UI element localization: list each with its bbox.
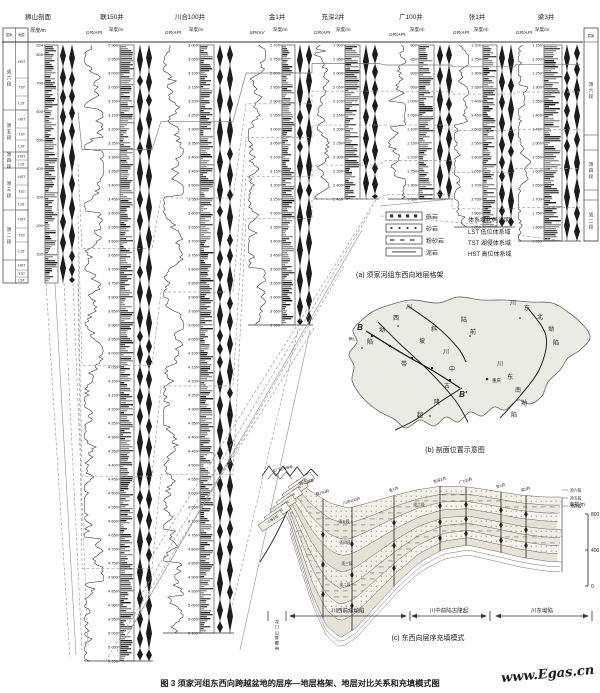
svg-text:3 300: 3 300: [108, 154, 119, 159]
svg-text:4 300: 4 300: [188, 406, 199, 411]
svg-text:2 950: 2 950: [108, 56, 119, 61]
well-column-5: 1 2001 2501 3001 3501 4001 4501 5001 550…: [454, 42, 515, 229]
legend-item-label: 泥岩: [426, 249, 438, 257]
svg-text:3 450: 3 450: [270, 252, 281, 257]
svg-text:2 750: 2 750: [270, 56, 281, 61]
svg-text:4 650: 4 650: [188, 504, 199, 509]
well-name-lian150: 联150井: [100, 12, 124, 21]
svg-text:4 800: 4 800: [108, 574, 119, 579]
svg-text:1 750: 1 750: [471, 196, 482, 201]
fill-model: 龙门山冲断带遂宁组须五段须四段须三段须二段小塘子组狮山剖面联150井川合100井…: [258, 464, 600, 652]
svg-text:500: 500: [36, 138, 43, 143]
svg-text:4 200: 4 200: [188, 378, 199, 383]
well-name-chuanhe100: 川合100井: [175, 12, 206, 21]
depth-label-lian150: 深度/m: [109, 26, 124, 33]
svg-text:1 350: 1 350: [471, 84, 482, 89]
well-column-1: 3 0003 0503 1003 1503 2003 2503 3003 350…: [163, 42, 234, 635]
svg-text:二: 二: [589, 219, 594, 224]
shishan-section: 层序地层须六段须五段须四段须三段须二段HSTTSTLSTHSTTSTLSTHST…: [3, 28, 75, 283]
svg-text:3 700: 3 700: [188, 238, 199, 243]
svg-text:1 300: 1 300: [532, 84, 543, 89]
legend-tract-line: TST 湖侵体系域: [468, 239, 511, 247]
svg-text:地层: 地层: [18, 32, 24, 37]
model-well-label: 张1井: [495, 482, 506, 490]
svg-text:4 150: 4 150: [108, 392, 119, 397]
svg-text:1 750: 1 750: [532, 210, 543, 215]
curve-label-chongshen2: GR/API: [314, 30, 331, 36]
map-region-label: 北: [537, 313, 543, 321]
legend-tract-line: LST 低位体系域: [468, 228, 511, 236]
map-region-label: 东: [524, 304, 530, 312]
svg-text:3 100: 3 100: [188, 70, 199, 75]
map-region-label: 坳: [379, 326, 385, 334]
svg-text:1 450: 1 450: [532, 126, 543, 131]
svg-text:4 050: 4 050: [188, 336, 199, 341]
svg-text:4 000: 4 000: [188, 322, 199, 327]
svg-text:2 300: 2 300: [333, 154, 344, 159]
svg-text:HST: HST: [18, 155, 26, 159]
well-name-guang100: 广100井: [399, 12, 423, 21]
svg-text:3 500: 3 500: [270, 266, 281, 271]
model-well-label: 梁3井: [520, 485, 531, 493]
map-region-label: 隆: [434, 398, 440, 406]
figure3-container: 层序地层须六段须五段须四段须三段须二段HSTTSTLSTHSTTSTLSTHST…: [0, 0, 600, 693]
model-member-label: 须六段: [413, 502, 425, 507]
svg-text:1 550: 1 550: [471, 140, 482, 145]
svg-text:3 250: 3 250: [270, 196, 281, 201]
curve-label-lian150: GR/API: [86, 30, 103, 36]
svg-text:1 600: 1 600: [471, 154, 482, 159]
map-region-label: 陆: [461, 316, 467, 324]
elev-tick: 0: [591, 584, 594, 590]
model-well-label: 广100井: [458, 476, 473, 485]
svg-text:4 850: 4 850: [188, 560, 199, 565]
legend-tracts-title: 体系域代码说明：: [468, 216, 516, 224]
svg-text:3 250: 3 250: [188, 112, 199, 117]
map-region-label: 起: [417, 411, 423, 419]
svg-text:须: 须: [7, 122, 12, 129]
svg-text:1 650: 1 650: [532, 182, 543, 187]
svg-text:1 600: 1 600: [532, 168, 543, 173]
svg-text:3 200: 3 200: [188, 98, 199, 103]
svg-text:3 250: 3 250: [108, 140, 119, 145]
model-member-label: 须三段: [341, 561, 353, 566]
svg-text:2 700: 2 700: [270, 42, 281, 47]
svg-text:3 050: 3 050: [270, 140, 281, 145]
svg-text:4 250: 4 250: [188, 392, 199, 397]
map-region-label: 川: [510, 300, 516, 307]
zone-label: 川西前缘坳陷: [331, 607, 364, 615]
depth-label-guang100: 深度/m: [410, 26, 425, 33]
well-name-zhang1: 张1井: [469, 12, 486, 21]
svg-text:HST: HST: [18, 218, 26, 222]
svg-text:3 500: 3 500: [108, 210, 119, 215]
svg-text:1 700: 1 700: [471, 182, 482, 187]
svg-text:1 550: 1 550: [532, 154, 543, 159]
svg-text:五: 五: [7, 129, 12, 134]
well-column-4: 8008509009501 0001 0501 1001 1501 2001 2…: [388, 42, 453, 201]
depth-label-chongshen2: 深度/m: [336, 26, 351, 33]
svg-text:3 800: 3 800: [188, 266, 199, 271]
map-region-label: 前: [470, 328, 476, 336]
svg-text:3 600: 3 600: [188, 210, 199, 215]
svg-text:3 000: 3 000: [188, 42, 199, 47]
map-b-end: B′: [459, 390, 468, 399]
svg-text:850: 850: [410, 56, 417, 61]
svg-text:4 100: 4 100: [188, 350, 199, 355]
svg-text:3 500: 3 500: [188, 182, 199, 187]
map-region-label: 陷: [553, 339, 559, 347]
map-region-label: 陷: [367, 338, 373, 346]
curve-label-zhang1: GR/API: [453, 30, 470, 36]
svg-text:3 150: 3 150: [188, 84, 199, 89]
svg-text:4 100: 4 100: [108, 378, 119, 383]
svg-text:3 000: 3 000: [108, 70, 119, 75]
svg-text:LST: LST: [18, 250, 25, 254]
model-right-label: 须五段: [570, 496, 582, 501]
svg-text:TST: TST: [18, 86, 26, 90]
svg-text:须: 须: [7, 151, 12, 158]
depth-label-jin1: 深度/m: [273, 26, 288, 33]
svg-text:3 150: 3 150: [108, 112, 119, 117]
svg-text:5 050: 5 050: [108, 644, 119, 649]
well-column-0: 2 9002 9503 0003 0503 1003 1503 2003 250…: [84, 42, 153, 663]
svg-text:1 250: 1 250: [532, 70, 543, 75]
svg-text:LST: LST: [18, 203, 25, 207]
location-map: 川西坳陷斜坡带前陆川中古隆起川东北坳陷川东南坳陷狮山: [349, 297, 591, 430]
svg-text:4 150: 4 150: [188, 364, 199, 369]
svg-text:3 650: 3 650: [108, 252, 119, 257]
elev-tick: 400: [591, 548, 600, 554]
svg-text:400: 400: [36, 166, 43, 171]
depth-label-zhang1: 深度/m: [474, 26, 489, 33]
svg-text:300: 300: [36, 195, 43, 200]
model-member-label: 须二段: [339, 582, 351, 587]
section-title: 狮山剖面: [25, 12, 52, 21]
svg-text:须: 须: [7, 69, 12, 76]
svg-text:1 250: 1 250: [407, 168, 418, 173]
svg-text:HST: HST: [18, 118, 26, 122]
curve-label-chuanhe100: GR/API: [165, 30, 182, 36]
svg-text:3 850: 3 850: [108, 308, 119, 313]
svg-text:2 250: 2 250: [333, 140, 344, 145]
liang3-member-column: 层序须六段须四段须二段: [584, 28, 598, 241]
svg-text:3 100: 3 100: [270, 154, 281, 159]
svg-text:3 750: 3 750: [188, 252, 199, 257]
svg-text:4 900: 4 900: [188, 574, 199, 579]
svg-text:3 950: 3 950: [108, 336, 119, 341]
map-region-label: 西: [393, 315, 399, 322]
svg-text:4 300: 4 300: [108, 434, 119, 439]
svg-text:层序: 层序: [6, 32, 13, 37]
svg-text:1 400: 1 400: [532, 112, 543, 117]
svg-text:段: 段: [7, 163, 12, 170]
svg-text:3 400: 3 400: [270, 238, 281, 243]
svg-text:须: 须: [7, 180, 12, 187]
curve-label-jin1: SP/mV: [250, 30, 266, 36]
curve-label-guang100: GR/API: [389, 32, 406, 38]
svg-text:1 200: 1 200: [471, 42, 482, 47]
depth-label-liang3: 深度/m: [535, 26, 550, 33]
svg-text:4 750: 4 750: [108, 560, 119, 565]
svg-text:须: 须: [589, 81, 594, 88]
well-name-chongshen2: 充深2井: [321, 12, 345, 21]
legend-item-label: 粉砂岩: [426, 237, 444, 245]
well-name-liang3: 梁3井: [538, 12, 555, 21]
zone-label: 川中前陆古隆起: [430, 607, 469, 615]
svg-text:1 300: 1 300: [471, 70, 482, 75]
svg-text:1 150: 1 150: [407, 140, 418, 145]
zone-label: 川东坳陷: [531, 607, 553, 615]
svg-text:须: 须: [7, 226, 12, 233]
svg-text:100: 100: [36, 252, 43, 257]
svg-text:5 000: 5 000: [188, 602, 199, 607]
svg-text:2 950: 2 950: [270, 112, 281, 117]
svg-text:4 650: 4 650: [108, 532, 119, 537]
svg-text:3 000: 3 000: [270, 126, 281, 131]
section-thickness-label: 厚度/m: [30, 27, 46, 34]
map-region-label: 狮山: [349, 336, 357, 341]
svg-text:1 500: 1 500: [532, 140, 543, 145]
svg-text:3 200: 3 200: [108, 126, 119, 131]
svg-text:3 850: 3 850: [188, 280, 199, 285]
svg-text:3 900: 3 900: [108, 322, 119, 327]
svg-text:4 400: 4 400: [188, 434, 199, 439]
svg-text:3 050: 3 050: [108, 84, 119, 89]
svg-text:3 600: 3 600: [108, 238, 119, 243]
model-well-label: 川合100井: [342, 496, 361, 506]
svg-text:4 450: 4 450: [108, 476, 119, 481]
svg-text:4 950: 4 950: [188, 588, 199, 593]
svg-text:900: 900: [410, 70, 417, 75]
svg-text:2 050: 2 050: [333, 84, 344, 89]
model-elev-label: 海拔/m: [569, 501, 585, 508]
svg-text:1 200: 1 200: [407, 154, 418, 159]
svg-text:2 400: 2 400: [333, 182, 344, 187]
map-region-label: 斜: [431, 325, 437, 333]
svg-text:1 800: 1 800: [532, 224, 543, 229]
svg-text:1 200: 1 200: [532, 56, 543, 61]
svg-text:4 750: 4 750: [188, 532, 199, 537]
svg-text:3 200: 3 200: [270, 182, 281, 187]
svg-text:4 700: 4 700: [108, 546, 119, 551]
svg-text:LST: LST: [18, 102, 25, 106]
svg-text:二: 二: [7, 233, 12, 238]
svg-text:2 900: 2 900: [270, 98, 281, 103]
svg-text:3 050: 3 050: [188, 56, 199, 61]
map-region-label: 川: [497, 361, 503, 368]
svg-text:4 800: 4 800: [188, 546, 199, 551]
svg-text:4 400: 4 400: [108, 462, 119, 467]
svg-text:LST: LST: [18, 145, 25, 149]
svg-text:六: 六: [589, 87, 594, 94]
svg-text:3 350: 3 350: [108, 168, 119, 173]
curve-label-liang3: GR/API: [516, 30, 533, 36]
figure-caption: 图 3 须家河组东西向跨越盆地的层序—地层格架、地层对比关系和充填模式图: [160, 678, 439, 688]
svg-text:TST: TST: [18, 133, 26, 137]
map-region-label: 坡: [419, 337, 425, 345]
svg-text:HST: HST: [18, 175, 26, 179]
svg-text:800: 800: [410, 42, 417, 47]
svg-text:800: 800: [36, 52, 43, 57]
well-column-3: 1 9001 9502 0002 0502 1002 1502 2002 250…: [314, 42, 379, 201]
svg-text:2 900: 2 900: [108, 42, 119, 47]
svg-text:3 550: 3 550: [188, 196, 199, 201]
svg-text:3 900: 3 900: [188, 294, 199, 299]
legend-tract-line: HST 高位体系域: [468, 250, 512, 258]
svg-text:1 300: 1 300: [407, 182, 418, 187]
svg-text:200: 200: [36, 223, 43, 228]
svg-text:段: 段: [589, 173, 594, 180]
svg-text:4 900: 4 900: [108, 602, 119, 607]
svg-text:3 650: 3 650: [270, 308, 281, 313]
svg-text:3 450: 3 450: [188, 168, 199, 173]
svg-text:1 900: 1 900: [333, 42, 344, 47]
svg-text:1 050: 1 050: [407, 112, 418, 117]
svg-text:TST: TST: [18, 190, 26, 194]
svg-text:段: 段: [7, 192, 12, 199]
figure3-svg: 层序地层须六段须五段须四段须三段须二段HSTTSTLSTHSTTSTLSTHST…: [0, 0, 600, 693]
map-region-label: 南: [515, 386, 521, 394]
svg-text:段: 段: [7, 238, 12, 245]
legend-item-label: 砾岩: [426, 213, 438, 221]
svg-text:3 350: 3 350: [270, 224, 281, 229]
svg-text:3 150: 3 150: [270, 168, 281, 173]
svg-text:3 550: 3 550: [270, 280, 281, 285]
svg-text:四: 四: [589, 168, 594, 173]
depth-label-chuanhe100: 深度/m: [189, 26, 204, 33]
svg-text:2 850: 2 850: [270, 84, 281, 89]
svg-text:3 950: 3 950: [188, 308, 199, 313]
svg-text:3 800: 3 800: [108, 294, 119, 299]
well-column-6: 1 1501 2001 2501 3001 3501 4001 4501 500…: [518, 42, 581, 243]
svg-text:1 150: 1 150: [532, 42, 543, 47]
svg-text:层序: 层序: [588, 33, 595, 38]
figure-graphics: 层序地层须六段须五段须四段须三段须二段HSTTSTLSTHSTTSTLSTHST…: [2, 28, 600, 663]
svg-text:4 600: 4 600: [188, 490, 199, 495]
model-right-label: 须六段: [570, 488, 582, 493]
model-well-label: 充深2井: [432, 476, 447, 485]
svg-text:1 350: 1 350: [532, 98, 543, 103]
svg-text:TST: TST: [18, 272, 26, 276]
svg-text:1 800: 1 800: [471, 210, 482, 215]
map-b-start: B: [357, 323, 363, 332]
caption-c: (c) 东西向层序充填模式: [391, 633, 464, 642]
svg-text:4 250: 4 250: [108, 420, 119, 425]
model-well-label: 联150井: [315, 488, 330, 497]
svg-text:龙门山冲断带: 龙门山冲断带: [272, 464, 294, 473]
svg-text:3 700: 3 700: [108, 266, 119, 271]
svg-text:700: 700: [36, 81, 43, 86]
svg-text:4 500: 4 500: [108, 490, 119, 495]
svg-text:3 750: 3 750: [108, 280, 119, 285]
svg-text:950: 950: [410, 84, 417, 89]
svg-text:4 550: 4 550: [108, 504, 119, 509]
svg-text:段: 段: [589, 93, 594, 100]
svg-text:3 650: 3 650: [188, 224, 199, 229]
svg-text:4 200: 4 200: [108, 406, 119, 411]
map-region-label: 川: [443, 349, 449, 356]
map-region-label: 中: [449, 365, 455, 373]
svg-text:3 400: 3 400: [108, 182, 119, 187]
elev-tick: 800: [591, 512, 600, 518]
svg-text:2 000: 2 000: [333, 70, 344, 75]
caption-b: (b) 剖面位置示意图: [425, 445, 485, 454]
svg-text:4 450: 4 450: [188, 448, 199, 453]
map-region-label: 坳: [548, 325, 554, 333]
legend-item-label: 砂岩: [426, 225, 438, 233]
svg-text:TST: TST: [18, 234, 26, 238]
svg-text:600: 600: [36, 109, 43, 114]
svg-text:段: 段: [7, 134, 12, 141]
model-member-label: 须五段: [338, 519, 350, 524]
svg-text:4 950: 4 950: [108, 616, 119, 621]
well-name-jin1: 金1井: [269, 12, 286, 21]
svg-text:1 100: 1 100: [407, 126, 418, 131]
svg-text:3 450: 3 450: [108, 196, 119, 201]
svg-text:1 950: 1 950: [333, 56, 344, 61]
svg-text:LST: LST: [18, 163, 25, 167]
svg-text:HST: HST: [18, 60, 26, 64]
svg-text:4 000: 4 000: [108, 350, 119, 355]
svg-text:1 400: 1 400: [471, 98, 482, 103]
map-region-label: 带: [401, 360, 407, 368]
svg-text:带: 带: [275, 646, 279, 652]
svg-text:1 250: 1 250: [471, 56, 482, 61]
svg-text:2 100: 2 100: [333, 98, 344, 103]
svg-text:1 700: 1 700: [532, 196, 543, 201]
svg-text:4 350: 4 350: [188, 420, 199, 425]
caption-a: (a) 须家河组东西向地层格架: [356, 270, 444, 279]
well-column-2: 2 7002 7502 8002 8502 9002 9503 0003 050…: [248, 42, 313, 327]
map-city-label: 重庆: [492, 377, 501, 384]
svg-text:4 850: 4 850: [108, 588, 119, 593]
svg-text:4 600: 4 600: [108, 518, 119, 523]
svg-text:3 300: 3 300: [270, 210, 281, 215]
svg-text:须: 须: [589, 161, 594, 168]
svg-text:4 550: 4 550: [188, 476, 199, 481]
svg-text:须: 须: [589, 212, 594, 219]
svg-text:3 600: 3 600: [270, 294, 281, 299]
svg-text:4 350: 4 350: [108, 448, 119, 453]
map-region-label: 东: [507, 373, 513, 381]
svg-text:834: 834: [36, 43, 43, 48]
svg-text:3 100: 3 100: [108, 98, 119, 103]
svg-text:2 350: 2 350: [333, 168, 344, 173]
svg-text:3 300: 3 300: [188, 126, 199, 131]
svg-text:1 450: 1 450: [471, 112, 482, 117]
map-region-label: 陷: [511, 411, 517, 419]
svg-text:四: 四: [7, 158, 12, 163]
watermark: www.Egas.cn: [501, 663, 595, 686]
svg-text:段: 段: [589, 224, 594, 231]
svg-text:段: 段: [7, 81, 12, 88]
svg-text:2 200: 2 200: [333, 126, 344, 131]
map-region-label: 坳: [521, 399, 527, 407]
svg-text:5 050: 5 050: [188, 616, 199, 621]
svg-text:六: 六: [7, 75, 12, 82]
svg-text:3 350: 3 350: [188, 140, 199, 145]
svg-text:4 500: 4 500: [188, 462, 199, 467]
svg-text:5 000: 5 000: [108, 630, 119, 635]
map-region-label: 古: [444, 382, 450, 390]
svg-text:HST: HST: [18, 264, 26, 268]
svg-text:1 000: 1 000: [407, 98, 418, 103]
svg-text:3 550: 3 550: [108, 224, 119, 229]
map-region-label: 川: [406, 304, 412, 311]
svg-text:2 150: 2 150: [333, 112, 344, 117]
svg-text:LST: LST: [18, 279, 25, 283]
